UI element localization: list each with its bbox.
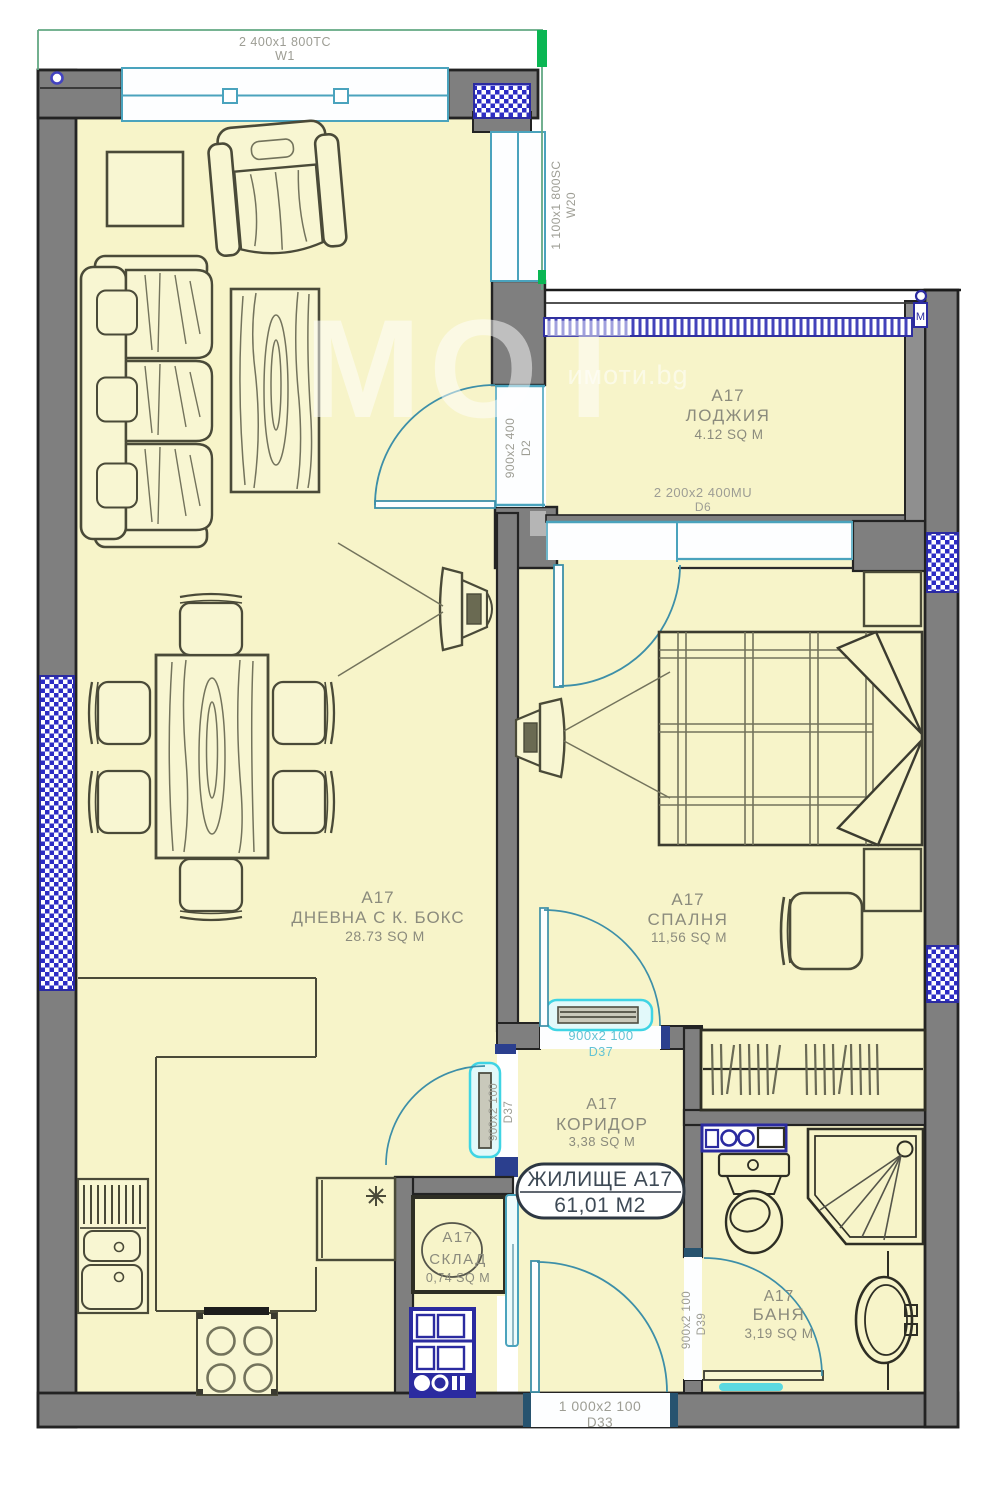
svg-text:А17: А17 [361, 888, 394, 907]
svg-text:СПАЛНЯ: СПАЛНЯ [648, 910, 729, 929]
svg-text:11,56 SQ M: 11,56 SQ M [651, 930, 727, 945]
svg-text:СКЛАД: СКЛАД [429, 1251, 487, 1268]
svg-text:1 100x1 800SC: 1 100x1 800SC [549, 160, 563, 249]
svg-text:2 400x1 800TC: 2 400x1 800TC [239, 35, 331, 49]
svg-text:КОРИДОР: КОРИДОР [556, 1114, 648, 1134]
svg-text:А17: А17 [442, 1229, 473, 1246]
svg-text:900x2 100: 900x2 100 [488, 1083, 500, 1141]
svg-text:ДНЕВНА С К. БОКС: ДНЕВНА С К. БОКС [291, 908, 464, 927]
svg-text:W1: W1 [275, 49, 295, 63]
svg-text:28.73 SQ M: 28.73 SQ M [345, 928, 425, 944]
svg-text:900x2 100: 900x2 100 [568, 1028, 633, 1043]
svg-text:имоти.bg: имоти.bg [567, 360, 688, 390]
svg-text:БАНЯ: БАНЯ [753, 1305, 806, 1324]
svg-text:M: M [916, 311, 925, 323]
svg-text:D39: D39 [696, 1313, 708, 1336]
svg-text:А17: А17 [764, 1288, 795, 1305]
svg-text:ЖИЛИЩЕ А17: ЖИЛИЩЕ А17 [527, 1168, 672, 1191]
svg-text:А17: А17 [711, 386, 744, 405]
svg-text:61,01 М2: 61,01 М2 [554, 1194, 646, 1217]
svg-text:0,74 SQ M: 0,74 SQ M [426, 1271, 490, 1285]
svg-text:900x2 100: 900x2 100 [681, 1291, 693, 1349]
svg-text:D37: D37 [503, 1101, 515, 1124]
svg-text:3,19 SQ M: 3,19 SQ M [744, 1326, 813, 1341]
svg-text:А17: А17 [671, 890, 704, 909]
svg-text:D33: D33 [587, 1415, 613, 1430]
svg-text:2 200x2 400MU: 2 200x2 400MU [654, 485, 752, 500]
svg-text:А17: А17 [586, 1096, 617, 1113]
svg-text:ЛОДЖИЯ: ЛОДЖИЯ [686, 406, 771, 425]
svg-text:1 000x2 100: 1 000x2 100 [559, 1398, 642, 1414]
svg-text:W20: W20 [564, 192, 578, 218]
svg-text:3,38 SQ M: 3,38 SQ M [569, 1134, 636, 1149]
svg-text:D6: D6 [695, 500, 711, 514]
svg-text:D37: D37 [589, 1045, 613, 1059]
svg-text:4.12 SQ M: 4.12 SQ M [694, 427, 763, 442]
